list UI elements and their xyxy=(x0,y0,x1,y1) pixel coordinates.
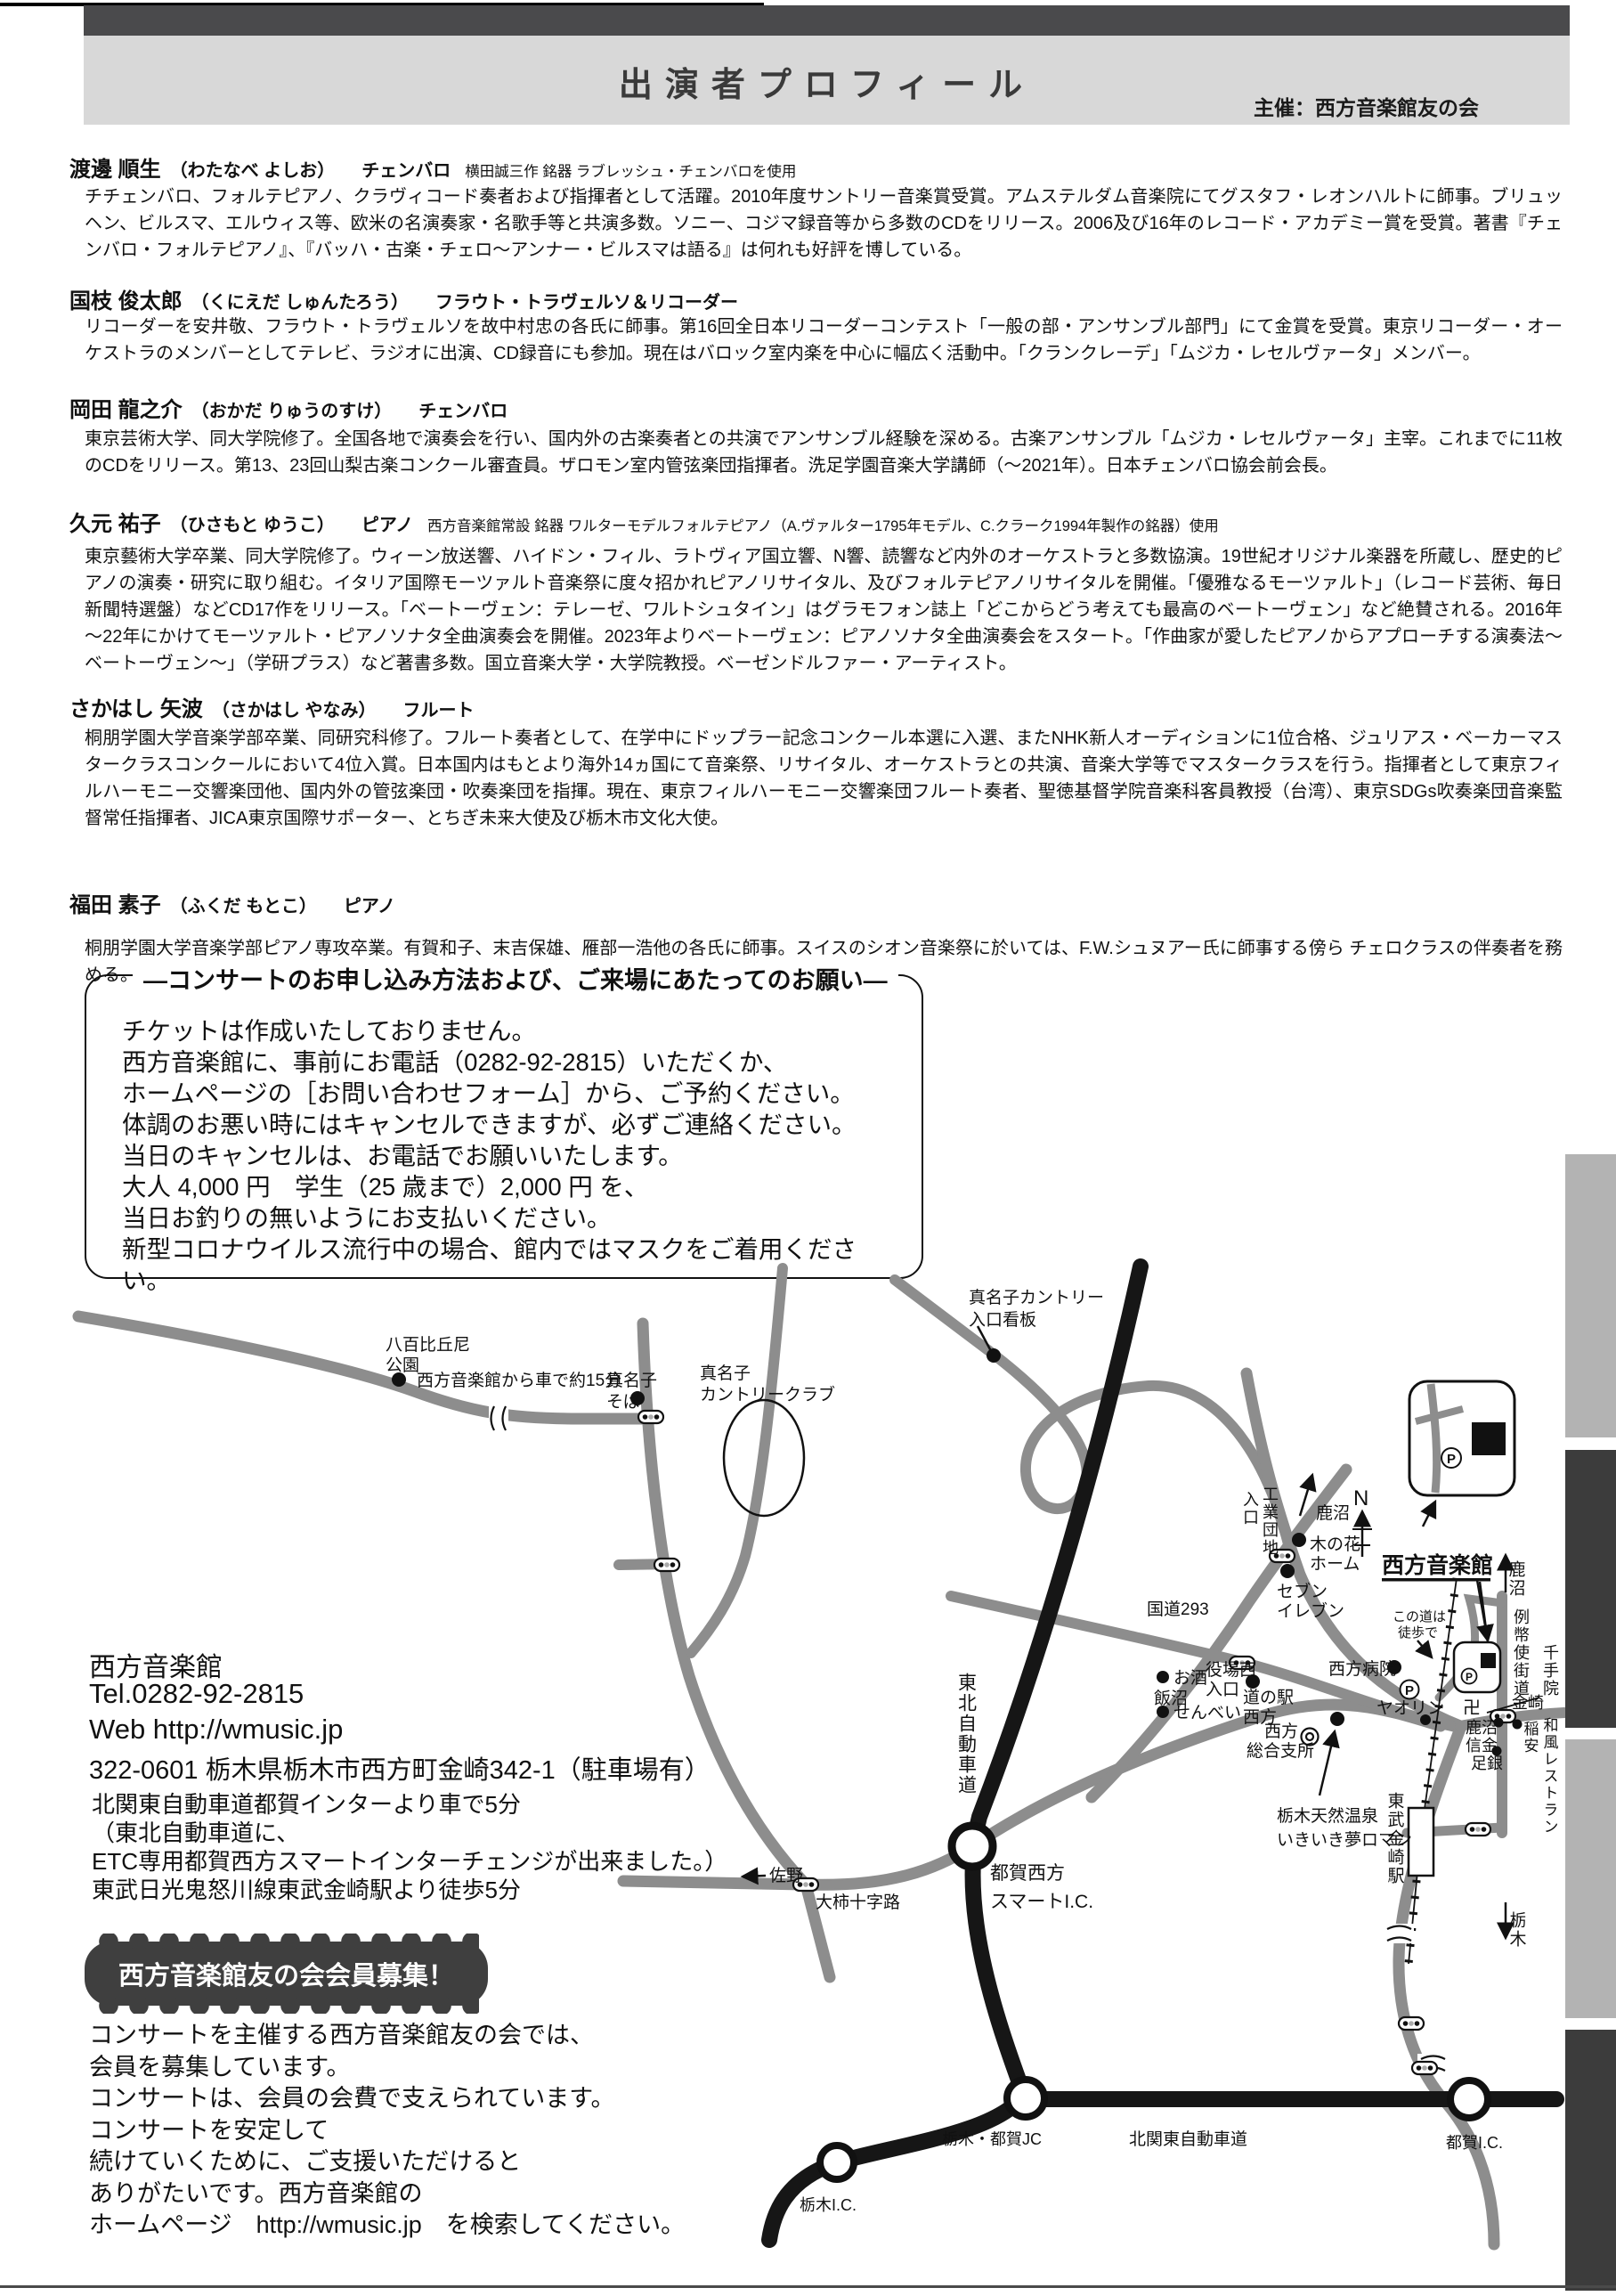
recruit-line: 会員を募集しています。 xyxy=(89,2052,685,2084)
side-bar-light-1 xyxy=(1565,1154,1616,1437)
access-line: 東武日光鬼怒川線東武金崎駅より徒歩5分 xyxy=(92,1872,521,1905)
label-drive15: 西方音楽館から車で約15分 xyxy=(417,1371,621,1390)
venue-tel: Tel.0282-92-2815 xyxy=(89,1678,304,1710)
recruit-line: 続けていくために、ご支援いただけると xyxy=(89,2146,685,2178)
svg-text:入口: 入口 xyxy=(1206,1681,1239,1699)
label-music-hall: 西方音楽館 xyxy=(1382,1552,1493,1578)
bottom-rule xyxy=(0,2285,1616,2288)
tsuga-ic-circle xyxy=(1450,2080,1488,2118)
svg-text:入口看板: 入口看板 xyxy=(969,1310,1036,1330)
tochigi-ic-circle xyxy=(820,2145,854,2179)
label-kanuma-e: 鹿沼 xyxy=(1506,1560,1526,1598)
membership-badge: 西方音楽館友の会会員募集！ xyxy=(85,1942,488,2006)
label-tobu-station: 東武金崎駅 xyxy=(1385,1792,1405,1885)
parking-icon: P xyxy=(1447,1452,1456,1467)
inset-arrow xyxy=(1423,1502,1435,1527)
side-bar-light-2 xyxy=(1565,1739,1616,2018)
label-ashigin: 足銀 xyxy=(1471,1755,1503,1772)
parking-mark: P xyxy=(1401,1681,1419,1699)
svg-text:スマートI.C.: スマートI.C. xyxy=(990,1892,1093,1912)
label-tsuga-ic: 都賀I.C. xyxy=(1446,2134,1503,2152)
label-senjuin: 千手院 xyxy=(1541,1644,1559,1698)
label-country-club: 真名子 xyxy=(700,1364,751,1383)
label-shinkin: 鹿沼 xyxy=(1466,1719,1498,1737)
label-manago-soba: 真名子 xyxy=(606,1371,657,1390)
road-south xyxy=(1399,1729,1494,2244)
label-tochigi-tsuga-jc: 栃木・都賀JC xyxy=(942,2130,1042,2148)
svg-text:公園: 公園 xyxy=(386,1356,419,1375)
label-inayasu: 稲安 xyxy=(1522,1721,1539,1755)
hall-label-underline xyxy=(1382,1578,1490,1582)
recruit-line: ありがたいです。西方音楽館の xyxy=(89,2178,685,2211)
station-rect xyxy=(1409,1808,1433,1876)
venue-web: Web http://wmusic.jp xyxy=(89,1714,343,1746)
label-ogaki: 大柿十字路 xyxy=(816,1893,900,1912)
svg-text:入口: 入口 xyxy=(1241,1491,1259,1527)
label-smart-ic: 都賀西方 xyxy=(990,1863,1065,1884)
label-osake: お酒 xyxy=(1173,1668,1207,1688)
label-kanban: 真名子カントリー xyxy=(969,1288,1104,1307)
label-manji: 卍 xyxy=(1463,1698,1481,1718)
side-bar-dark-1 xyxy=(1565,1450,1616,1728)
label-sano: 佐野 xyxy=(769,1866,803,1885)
flyer-page: 出演者プロフィール 主催：西方音楽館友の会 渡邊 順生（わたなべ よしお）チェン… xyxy=(0,0,1616,2296)
svg-text:そば: そば xyxy=(606,1392,640,1412)
recruit-line: ホームページ http://wmusic.jp を検索してください。 xyxy=(89,2210,685,2242)
label-kanazaki: 金崎 xyxy=(1512,1694,1544,1712)
side-bar-dark-2 xyxy=(1565,2030,1616,2291)
hall-square-icon xyxy=(1472,1422,1506,1455)
venue-address: 322-0601 栃木県栃木市西方町金崎342-1（駐車場有） xyxy=(89,1749,711,1787)
smart-ic-circle xyxy=(952,1826,993,1867)
label-route293: 国道293 xyxy=(1147,1600,1209,1619)
recruit-line: コンサートは、会員の会費で支えられています。 xyxy=(89,2083,685,2115)
label-michinoeki: 道の駅 xyxy=(1243,1688,1294,1707)
hall-inset-box: P xyxy=(1409,1381,1514,1527)
road-kanban-loop xyxy=(895,1280,1289,1548)
onsen-leader-arrow xyxy=(1320,1731,1335,1795)
label-north: N xyxy=(1353,1486,1368,1510)
svg-text:徒歩で: 徒歩で xyxy=(1398,1625,1438,1641)
hall-square-icon xyxy=(1481,1653,1496,1668)
svg-text:P: P xyxy=(1405,1683,1414,1698)
sano-arrow xyxy=(743,1876,766,1877)
label-yaobikuni: 八百比丘尼 xyxy=(386,1335,470,1355)
road-country-club xyxy=(691,1268,783,1653)
parking-icon: P xyxy=(1466,1671,1473,1683)
svg-text:総合支所: 総合支所 xyxy=(1247,1741,1314,1761)
label-konomichi: この道は xyxy=(1393,1609,1446,1624)
jc-circle xyxy=(1007,2080,1044,2117)
walk-arrow xyxy=(1417,1641,1432,1657)
svg-text:信金: 信金 xyxy=(1466,1737,1498,1755)
hall-arrow-tail xyxy=(1480,1582,1488,1642)
recruit-line: コンサートを安定して xyxy=(89,2115,685,2147)
road-yaobikuni xyxy=(78,1316,646,1419)
label-hospital: 西方病院 xyxy=(1328,1659,1396,1679)
label-yaorin: ヤオリン xyxy=(1376,1699,1444,1718)
label-tochigi-ic: 栃木I.C. xyxy=(800,2196,857,2214)
label-yakuba: 役場西 xyxy=(1206,1660,1256,1680)
svg-text:西方: 西方 xyxy=(1243,1707,1277,1727)
svg-text:イレブン: イレブン xyxy=(1277,1600,1344,1621)
label-onsen: 栃木天然温泉 xyxy=(1277,1806,1378,1826)
label-kitakanto: 北関東自動車道 xyxy=(1129,2129,1247,2149)
label-senbei: せんべい xyxy=(1173,1704,1241,1722)
svg-text:カントリークラブ: カントリークラブ xyxy=(700,1384,835,1404)
label-tochigi-s: 栃木 xyxy=(1507,1911,1527,1949)
recruit-line: コンサートを主催する西方音楽館友の会では、 xyxy=(89,2020,685,2052)
label-wafu: 和風レストラン xyxy=(1541,1717,1559,1836)
membership-text: コンサートを主催する西方音楽館友の会では、 会員を募集しています。 コンサートは… xyxy=(89,2020,685,2242)
label-konohana: 木の花 xyxy=(1310,1535,1360,1554)
label-kogyodanchi: 工業団地 xyxy=(1261,1486,1279,1557)
label-tohoku-expwy: 東北自動車道 xyxy=(956,1673,978,1795)
hall-location-box: P xyxy=(1454,1642,1500,1692)
label-reiheishi: 例幣使街道 xyxy=(1512,1608,1530,1698)
label-kanuma-nw: 鹿沼 xyxy=(1316,1503,1350,1523)
label-seven-eleven: セブン xyxy=(1277,1581,1328,1601)
svg-text:ホーム: ホーム xyxy=(1310,1555,1360,1574)
